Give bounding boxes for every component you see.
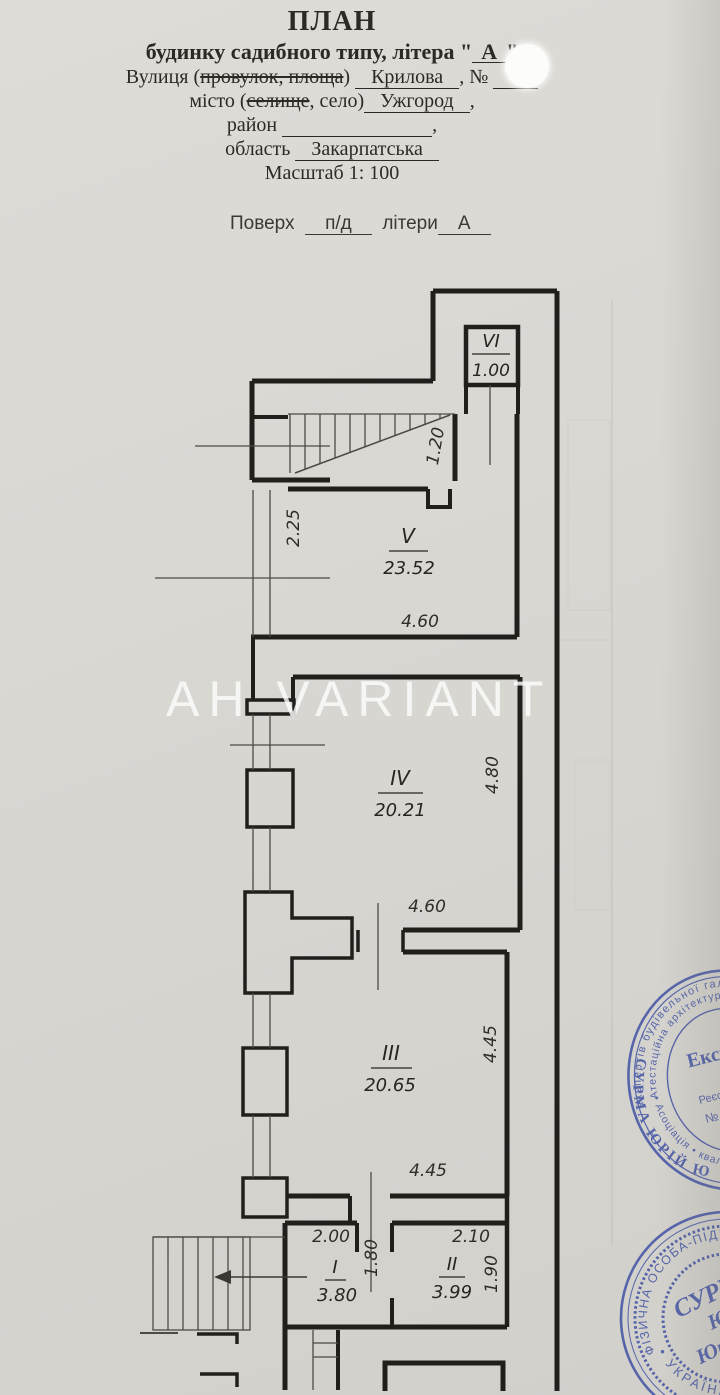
wall-pier-arm — [245, 892, 352, 993]
plan-labels: VI 1.00 1.20 2.25 V 23.52 4.60 IV 20.21 … — [284, 331, 510, 1306]
room-iii-number: III — [382, 1041, 400, 1065]
watermark: АН VARIANT — [166, 670, 552, 728]
room-ii-number: II — [447, 1254, 458, 1275]
dim-v-bottom: 4.60 — [401, 612, 439, 632]
room-i-number: I — [332, 1257, 337, 1278]
room-v-number: V — [401, 524, 416, 548]
room-vi-area: 1.00 — [472, 361, 510, 381]
dim-iii-right: 4.45 — [481, 1025, 501, 1063]
room-ii-area: 3.99 — [432, 1282, 472, 1303]
dim-ii-top: 2.10 — [452, 1227, 490, 1247]
dim-i-right: 1.80 — [362, 1239, 382, 1277]
dim-iv-right: 4.80 — [483, 756, 503, 794]
dim-ii-right: 1.90 — [482, 1255, 502, 1293]
stamp-expert-title: Експерт — [685, 1033, 720, 1072]
room-iv-area: 20.21 — [374, 800, 426, 821]
stamp-expert: експертів будівельної галузі • атестаці … — [604, 949, 720, 1212]
plan-walls — [197, 291, 557, 1391]
privacy-cover-circle — [505, 44, 549, 88]
dim-v-left: 2.25 — [284, 509, 304, 547]
dim-stair-width: 1.20 — [423, 426, 449, 467]
room-iii-area: 20.65 — [364, 1075, 416, 1096]
room-v-area: 23.52 — [383, 558, 435, 579]
room-vi-number: VI — [482, 331, 500, 352]
room-i-area: 3.80 — [317, 1285, 357, 1306]
dim-iii-bottom: 4.45 — [409, 1161, 447, 1181]
wall-pier — [243, 1178, 287, 1217]
dim-i-top: 2.00 — [312, 1227, 350, 1247]
room-iv-number: IV — [390, 766, 411, 790]
wall-pier — [243, 1048, 287, 1115]
stamp-fop: ФІЗИЧНА ОСОБА-ПІДПРИЄМЕЦЬ • УКРАЇНА • СУ… — [585, 1176, 720, 1395]
dim-iv-bottom: 4.60 — [408, 897, 446, 917]
wall-pier — [247, 770, 293, 827]
exit-arrow — [214, 1270, 307, 1284]
ghost-lines — [560, 300, 612, 1245]
stamp-expert-reg1: Реєстраційн — [698, 1080, 720, 1107]
stamp-expert-reg2: № 39 — [704, 1105, 720, 1126]
